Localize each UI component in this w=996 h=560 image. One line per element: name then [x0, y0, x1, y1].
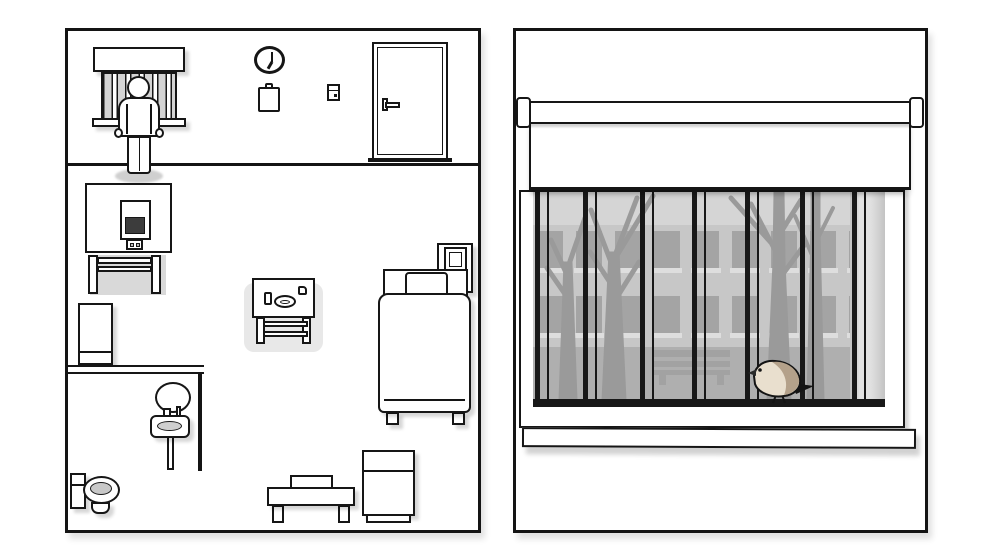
roller-rod: [521, 101, 919, 124]
switch-dot: [334, 94, 337, 97]
sink[interactable]: [150, 406, 192, 470]
bathroom-wall-h: [68, 365, 204, 374]
window-bars: [533, 190, 885, 407]
cup-item[interactable]: [298, 286, 307, 295]
door[interactable]: [368, 42, 452, 164]
game-screen: { "palette": { "outline": "#161616", "sh…: [0, 0, 996, 560]
side-table-hotspot[interactable]: [244, 278, 323, 352]
bar: [535, 190, 540, 407]
bench-leg-right: [338, 505, 350, 523]
bird-beak: [748, 370, 756, 377]
tv-knob-2: [136, 243, 140, 247]
figure-legs: [127, 136, 151, 174]
bird[interactable]: [748, 356, 816, 404]
tv-table[interactable]: [85, 183, 175, 295]
side-table-top: [252, 278, 315, 318]
toilet[interactable]: [68, 471, 124, 517]
roller-cap-right: [909, 97, 924, 128]
figure-head: [127, 76, 150, 99]
carton-item[interactable]: [264, 292, 272, 305]
leg-separator: [139, 138, 141, 171]
tv-screen: [125, 217, 145, 234]
cabinet[interactable]: [362, 450, 418, 525]
tv-table-leg-left: [88, 255, 98, 294]
side-table-rail: [263, 321, 308, 327]
side-table-rail2: [263, 331, 308, 337]
window-sill: [522, 427, 916, 449]
bed-blanket-line: [384, 399, 465, 401]
sink-bowl: [157, 421, 182, 431]
toilet-bowl: [83, 476, 120, 504]
bed-foot-left: [386, 412, 399, 425]
bench-leg-left: [272, 505, 284, 523]
plate-item[interactable]: [274, 295, 296, 308]
bar: [704, 190, 706, 407]
figure-hand-left: [114, 128, 123, 138]
bar: [595, 190, 597, 407]
door-leaf: [372, 42, 448, 160]
bar: [692, 190, 697, 407]
fridge[interactable]: [78, 303, 113, 365]
window-valance: [93, 47, 185, 72]
fridge-line: [80, 351, 111, 353]
cabinet-body: [362, 450, 415, 516]
bars-bottom-rail: [533, 399, 885, 407]
window-view-panel: [513, 28, 928, 533]
bed-body: [378, 293, 471, 413]
tv-table-leg-right: [151, 255, 161, 294]
bathroom-wall-v: [198, 372, 202, 471]
figure-hand-right: [155, 128, 164, 138]
bar: [547, 190, 549, 407]
roller-blind[interactable]: [529, 120, 911, 190]
plate-inner: [280, 300, 290, 304]
figure-torso: [118, 97, 160, 137]
bar: [652, 190, 654, 407]
object-inner: [449, 252, 462, 267]
room-overview-panel: [65, 28, 481, 533]
patient-figure[interactable]: [112, 71, 167, 185]
tv-table-leg-rail2: [97, 266, 152, 272]
tv-table-leg-rail: [97, 257, 152, 264]
clipboard-board: [258, 87, 280, 112]
arm-line-left: [126, 104, 128, 134]
bar: [583, 190, 588, 407]
cabinet-line: [364, 470, 413, 472]
roller-cap-left: [516, 97, 531, 128]
door-handle-lever[interactable]: [385, 102, 400, 108]
wall-clock[interactable]: [254, 46, 285, 74]
tank-line: [72, 484, 84, 486]
tv-knob-1: [130, 243, 134, 247]
bar: [640, 190, 645, 407]
switch-line: [329, 90, 338, 92]
toilet-seat: [90, 482, 112, 495]
tv-set[interactable]: [120, 200, 151, 240]
tv-control-panel[interactable]: [126, 239, 143, 250]
bed[interactable]: [376, 267, 473, 427]
hour-hand: [267, 61, 273, 69]
light-switch[interactable]: [327, 84, 340, 101]
bar: [852, 190, 857, 407]
sink-basin: [150, 415, 190, 438]
bench-table[interactable]: [267, 475, 357, 523]
bird-eye: [758, 368, 762, 372]
bed-foot-right: [452, 412, 465, 425]
bar: [864, 190, 866, 407]
bench-top: [267, 487, 355, 506]
clipboard[interactable]: [258, 83, 280, 112]
cabinet-base: [366, 514, 411, 523]
arm-line-right: [150, 104, 152, 134]
sink-pedestal: [167, 434, 174, 470]
